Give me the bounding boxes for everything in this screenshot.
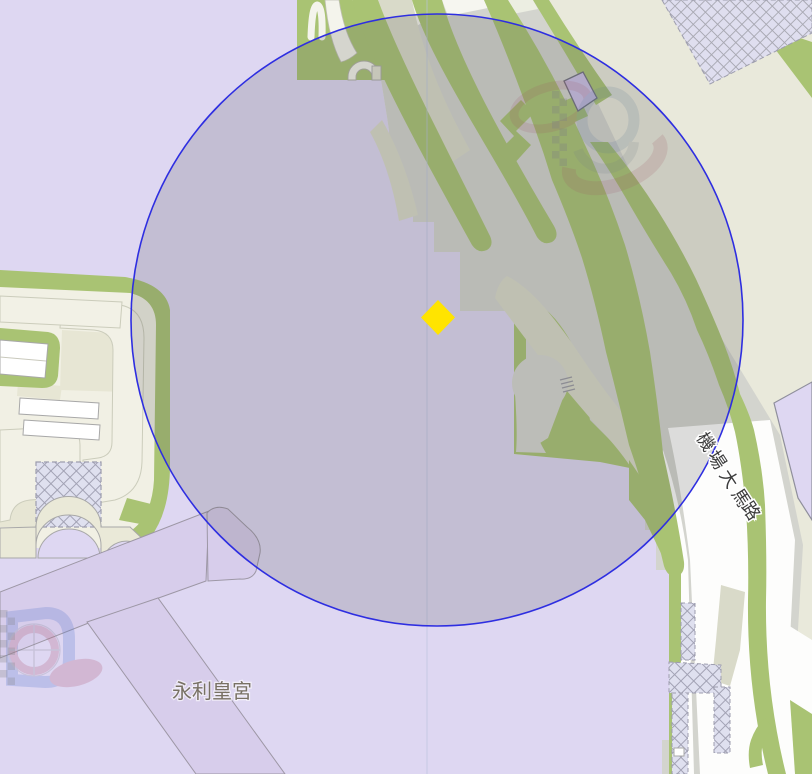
svg-text:永利皇宮: 永利皇宮 (172, 680, 252, 703)
